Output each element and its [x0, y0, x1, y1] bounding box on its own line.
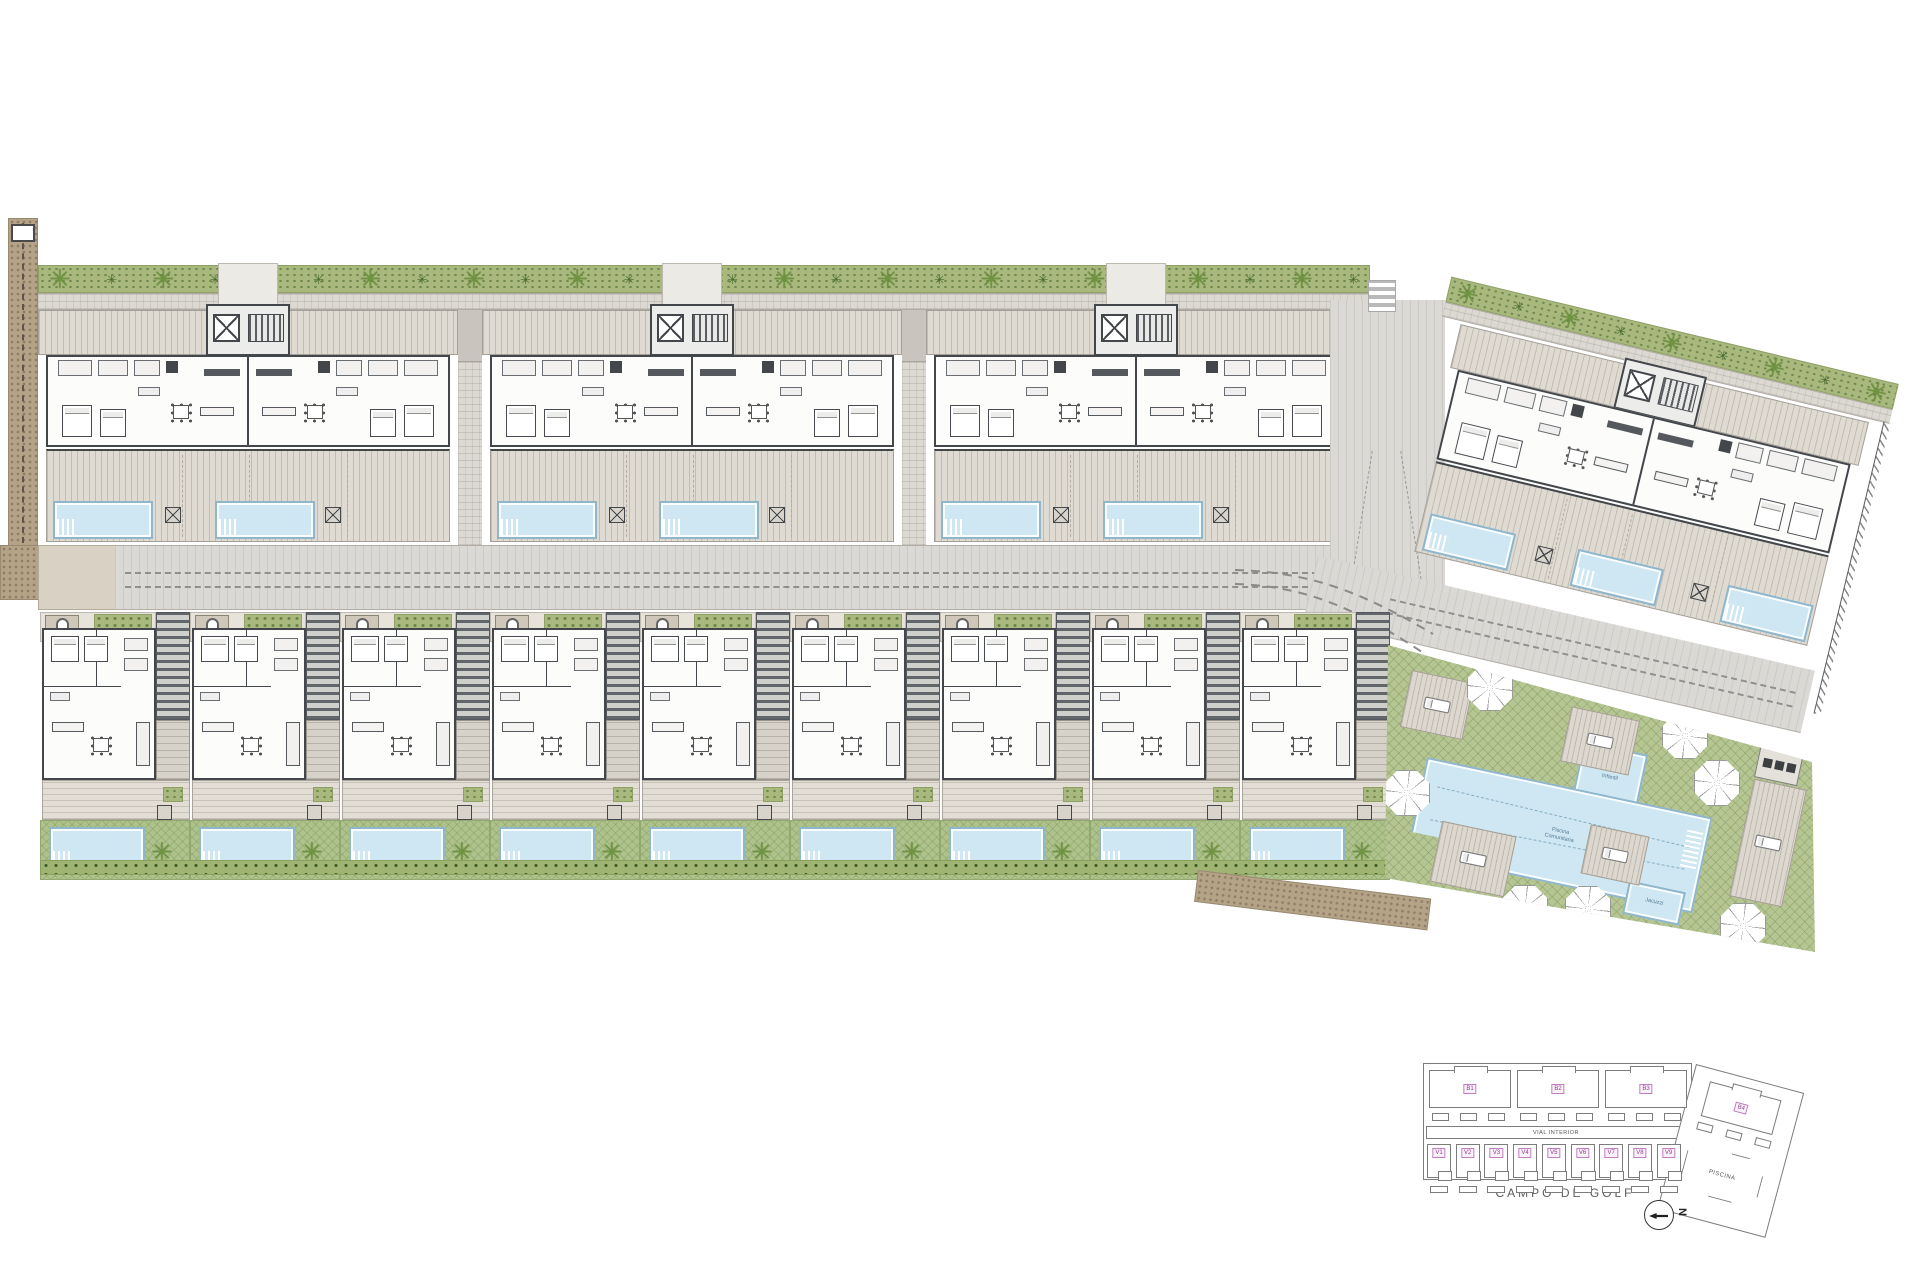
keyplan-villa-v7: V7: [1599, 1144, 1623, 1178]
terrace-divider: [791, 455, 792, 537]
planter: [163, 787, 183, 802]
sofa: [200, 407, 234, 416]
villa-tag: V4: [1518, 1148, 1531, 1158]
palm-icon: ✳: [566, 266, 588, 292]
apartment-unit: [248, 357, 448, 445]
parasol-icon: [1384, 770, 1430, 816]
wc-fixture: [762, 361, 774, 373]
path-centerline: [22, 223, 24, 543]
wardrobe: [50, 692, 70, 701]
kitchen-counter: [1607, 420, 1644, 435]
private-pool: [1422, 513, 1516, 570]
planter: [1213, 787, 1233, 802]
private-pool: [1570, 549, 1664, 606]
kitchen-counter: [436, 722, 450, 766]
elevator-icon: [213, 314, 240, 342]
wardrobe: [500, 692, 520, 701]
villa-side-deck: [906, 720, 940, 780]
wardrobe: [1224, 387, 1246, 396]
keyplan-villa-v4: V4: [1513, 1144, 1537, 1178]
dining-table: [1691, 474, 1721, 501]
dining-table: [168, 401, 194, 423]
sofa: [202, 722, 234, 732]
block-building: [490, 355, 894, 447]
wardrobe: [650, 692, 670, 701]
bush-icon: ✳: [727, 273, 738, 286]
stairs-icon: [1136, 314, 1172, 342]
kitchen-counter: [648, 369, 684, 376]
bathroom: [134, 360, 160, 376]
private-pool: [53, 501, 153, 539]
villa-side-deck: [1056, 720, 1090, 780]
bed: [84, 636, 108, 662]
bush-icon: ✳: [1818, 372, 1832, 387]
wc-fixture: [610, 361, 622, 373]
dining-table: [388, 734, 414, 756]
bed: [534, 636, 558, 662]
villa-stairs: [306, 612, 340, 720]
kitchen-counter: [136, 722, 150, 766]
gap-paving: [458, 310, 482, 362]
planter-box: [609, 507, 625, 523]
apartment-block-b3: [926, 310, 1346, 545]
keyplan-villa-pool: [1631, 1186, 1649, 1193]
keyplan-garage: [1520, 1113, 1537, 1121]
keyplan-villa-pool: [1545, 1186, 1563, 1193]
planter-box: [1057, 805, 1072, 820]
elevator-icon: [1623, 369, 1656, 403]
bed: [1754, 498, 1786, 531]
wardrobe: [1250, 692, 1270, 701]
villa-stairs: [1206, 612, 1240, 720]
planter-box: [769, 507, 785, 523]
apartment-unit: [692, 357, 892, 445]
sofa: [1088, 407, 1122, 416]
sun-lounger: [1423, 696, 1451, 713]
lounger-cushion: [1462, 853, 1469, 862]
planter: [463, 787, 483, 802]
villa-stairs: [1056, 612, 1090, 720]
kitchen-counter: [1657, 432, 1694, 447]
key-plan: VIAL INTERIOR B4 PISCINA CAMPO DE GOLF N…: [1420, 1060, 1820, 1270]
bed: [984, 636, 1008, 662]
block-b4-tag: B4: [1733, 1102, 1748, 1115]
keyplan-villa-v5: V5: [1542, 1144, 1566, 1178]
bathroom: [874, 638, 898, 651]
pool-steps: [1680, 827, 1704, 869]
terrace-divider: [347, 455, 348, 537]
sofa: [644, 407, 678, 416]
planter-box: [325, 507, 341, 523]
apartment-unit: [1136, 357, 1336, 445]
wardrobe: [1100, 692, 1120, 701]
keyplan-garage: [1432, 1113, 1449, 1121]
wc-fixture: [1718, 439, 1732, 453]
bed: [1134, 636, 1158, 662]
sun-lounger: [1601, 846, 1629, 863]
apartment-unit: [48, 357, 248, 445]
private-pool: [497, 501, 597, 539]
sofa: [706, 407, 740, 416]
bush-icon: ✳: [831, 273, 842, 286]
bed: [351, 636, 379, 662]
bed: [501, 636, 529, 662]
dining-table: [88, 734, 114, 756]
bed: [1284, 636, 1308, 662]
kitchen-counter: [204, 369, 240, 376]
sofa: [1150, 407, 1184, 416]
interior-wall: [1244, 686, 1321, 687]
interior-wall: [1094, 686, 1171, 687]
bed: [62, 405, 92, 437]
site-plan-canvas: ✳✳✳✳✳✳✳✳✳✳✳✳✳✳✳✳✳✳✳✳✳✳✳✳✳✳: [0, 0, 1920, 1280]
interior-wall: [494, 686, 571, 687]
terrace-divider: [1548, 499, 1568, 579]
pool-steps: [1574, 567, 1597, 587]
bathroom: [502, 360, 536, 376]
sun-lounger: [1586, 732, 1614, 749]
bathroom: [542, 360, 572, 376]
kitchen-counter: [286, 722, 300, 766]
bush-icon: ✳: [1716, 348, 1730, 363]
keyplan-villa-v6: V6: [1571, 1144, 1595, 1178]
keyplan-villa-v3: V3: [1484, 1144, 1508, 1178]
bed: [988, 409, 1014, 437]
keyplan-block-b3: B3: [1605, 1070, 1687, 1108]
lounger-cushion: [1757, 837, 1764, 846]
bed: [951, 636, 979, 662]
bed: [404, 405, 434, 437]
keyplan-garage: [1725, 1129, 1743, 1141]
villa-side-deck: [756, 720, 790, 780]
planter-box: [1690, 583, 1709, 602]
stairs-icon: [1657, 377, 1699, 413]
bathroom: [1735, 442, 1764, 464]
palm-icon: ✳: [877, 266, 899, 292]
pool-steps: [945, 519, 965, 535]
bush-icon: ✳: [624, 273, 635, 286]
block-building: [46, 355, 450, 447]
bed: [1292, 405, 1322, 437]
keyplan-garage: [1460, 1113, 1477, 1121]
wc-fixture: [166, 361, 178, 373]
villa-tag: V2: [1461, 1148, 1474, 1158]
dining-table: [1561, 443, 1591, 470]
palm-icon: ✳: [1291, 266, 1313, 292]
bathroom: [368, 360, 398, 376]
apartment-block-b1: [38, 310, 458, 545]
road-dash-line: [125, 586, 1318, 588]
planter-box: [1207, 805, 1222, 820]
lounger-cushion: [1426, 699, 1433, 708]
block-tag: B2: [1551, 1084, 1564, 1094]
gate-box: [11, 224, 35, 242]
bathroom: [404, 360, 438, 376]
bathroom: [1256, 360, 1286, 376]
villa-floorplan: [642, 628, 756, 780]
block-gap: [902, 310, 926, 545]
bathroom: [58, 360, 92, 376]
sofa: [502, 722, 534, 732]
villa-stairs: [606, 612, 640, 720]
wardrobe: [780, 387, 802, 396]
parasol-icon: [1565, 886, 1611, 932]
dining-table: [1288, 734, 1314, 756]
villa-floorplan: [42, 628, 156, 780]
sofa: [802, 722, 834, 732]
wc-fixture: [1570, 404, 1584, 418]
planter: [1063, 787, 1083, 802]
apartment-unit: [492, 357, 692, 445]
north-compass: [1644, 1200, 1674, 1230]
planter-box: [607, 805, 622, 820]
planter-box: [307, 805, 322, 820]
bathroom: [1504, 387, 1537, 410]
villa-row: ✳ ✳: [40, 612, 1390, 880]
bathroom: [124, 658, 148, 671]
bathroom: [1539, 395, 1568, 417]
bathroom: [424, 658, 448, 671]
terrace-divider: [182, 455, 183, 537]
private-pool: [659, 501, 759, 539]
road-dash-line: [125, 572, 1318, 574]
planter-box: [1213, 507, 1229, 523]
sofa: [52, 722, 84, 732]
palm-icon: ✳: [773, 266, 795, 292]
pool-steps: [219, 519, 239, 535]
villa-tag: V5: [1547, 1148, 1560, 1158]
villa-side-deck: [1206, 720, 1240, 780]
interior-wall: [794, 686, 871, 687]
villa-stairs: [456, 612, 490, 720]
sofa: [652, 722, 684, 732]
keyplan-garage: [1488, 1113, 1505, 1121]
interior-wall: [44, 686, 121, 687]
block-tag: B1: [1463, 1084, 1476, 1094]
bed: [234, 636, 258, 662]
sun-lounger: [1754, 834, 1782, 851]
sofa: [952, 722, 984, 732]
bush-icon: ✳: [1245, 273, 1256, 286]
block-building: [934, 355, 1338, 447]
bed: [201, 636, 229, 662]
bed: [384, 636, 408, 662]
sofa: [1102, 722, 1134, 732]
bed: [1454, 422, 1491, 460]
dining-table: [1138, 734, 1164, 756]
parasol-icon: [1720, 903, 1766, 949]
keyplan-villa-v2: V2: [1456, 1144, 1480, 1178]
keyplan-villa-v1: V1: [1427, 1144, 1451, 1178]
keyplan-garage: [1754, 1137, 1772, 1149]
bathroom: [724, 658, 748, 671]
dining-table: [838, 734, 864, 756]
block-gap: [458, 310, 482, 545]
keyplan-piscina-building: PISCINA: [1677, 1142, 1767, 1209]
interior-wall: [344, 686, 421, 687]
bed: [684, 636, 708, 662]
villa-v6: ✳: [790, 612, 940, 880]
bathroom: [124, 638, 148, 651]
block-pool-terrace: [46, 449, 450, 542]
bed: [834, 636, 858, 662]
bathroom: [848, 360, 882, 376]
sun-lounger: [1459, 850, 1487, 867]
keyplan-villa-pool: [1459, 1186, 1477, 1193]
block-stair-core: [206, 304, 290, 356]
bathroom: [574, 658, 598, 671]
interior-wall: [944, 686, 1021, 687]
elevator-icon: [657, 314, 684, 342]
block-stair-core: [1094, 304, 1178, 356]
villa-v2: ✳: [190, 612, 340, 880]
bush-icon: ✳: [1512, 299, 1526, 314]
apartment-block-b2: [482, 310, 902, 545]
wardrobe: [950, 692, 970, 701]
bathroom: [1224, 360, 1250, 376]
road-entry: [38, 545, 118, 610]
bed: [1101, 636, 1129, 662]
wc-fixture: [318, 361, 330, 373]
stairs-icon: [692, 314, 728, 342]
bathroom: [812, 360, 842, 376]
bush-icon: ✳: [417, 273, 428, 286]
private-pool: [1719, 585, 1813, 642]
bathroom: [1801, 458, 1838, 481]
sofa: [352, 722, 384, 732]
wardrobe: [350, 692, 370, 701]
bed: [370, 409, 396, 437]
crosswalk: [1368, 280, 1396, 312]
bathroom: [1174, 658, 1198, 671]
block-pool-terrace: [490, 449, 894, 542]
north-letter: N: [1676, 1208, 1688, 1216]
dining-table: [746, 401, 772, 423]
interior-wall: [644, 686, 721, 687]
sofa: [1252, 722, 1284, 732]
north-arrow-icon: [1649, 1213, 1668, 1219]
palm-icon: ✳: [359, 266, 381, 292]
wardrobe: [1538, 422, 1561, 436]
villa-tag: V6: [1576, 1148, 1589, 1158]
kitchen-counter: [1092, 369, 1128, 376]
keyplan-garage: [1608, 1113, 1625, 1121]
dining-table: [302, 401, 328, 423]
villa-side-deck: [1356, 720, 1390, 780]
lounger-cushion: [1604, 849, 1611, 858]
bed: [651, 636, 679, 662]
pool-steps: [1724, 603, 1747, 623]
villa-v7: ✳: [940, 612, 1090, 880]
bathroom: [874, 658, 898, 671]
private-pool: [941, 501, 1041, 539]
bush-icon: ✳: [1614, 323, 1628, 338]
dining-table: [1190, 401, 1216, 423]
wardrobe: [1730, 469, 1753, 483]
wc-fixture: [1206, 361, 1218, 373]
keyplan-vial: VIAL INTERIOR: [1426, 1126, 1686, 1139]
wardrobe: [1026, 387, 1048, 396]
bathroom: [986, 360, 1016, 376]
palm-icon: ✳: [49, 266, 71, 292]
block-pool-terrace: [934, 449, 1338, 542]
villa-tag: V3: [1490, 1148, 1503, 1158]
bathroom: [424, 638, 448, 651]
villa-floorplan: [492, 628, 606, 780]
parasol-icon: [1502, 885, 1548, 931]
bathroom: [578, 360, 604, 376]
apartment-unit: [936, 357, 1136, 445]
wardrobe: [582, 387, 604, 396]
villa-side-deck: [306, 720, 340, 780]
bed: [1787, 502, 1824, 540]
bed: [1491, 435, 1523, 468]
bed: [100, 409, 126, 437]
planter-box: [157, 805, 172, 820]
keyplan-garage: [1576, 1113, 1593, 1121]
stairs-icon: [248, 314, 284, 342]
keyplan-garage: [1636, 1113, 1653, 1121]
bed: [1251, 636, 1279, 662]
bathroom: [1022, 360, 1048, 376]
south-hedge: [40, 860, 1390, 875]
planter: [613, 787, 633, 802]
kitchen-counter: [1036, 722, 1050, 766]
bed: [848, 405, 878, 437]
dining-table: [612, 401, 638, 423]
bathroom: [1465, 377, 1502, 400]
planter-box: [757, 805, 772, 820]
pool-steps: [501, 519, 521, 535]
bed: [51, 636, 79, 662]
villa-stairs: [906, 612, 940, 720]
bathroom: [1766, 450, 1799, 473]
planter: [1363, 787, 1383, 802]
kitchen-counter: [1144, 369, 1180, 376]
bathroom: [336, 360, 362, 376]
bush-icon: ✳: [934, 273, 945, 286]
pool-steps: [663, 519, 683, 535]
keyplan-garage: [1696, 1122, 1714, 1134]
villa-v1: ✳: [40, 612, 190, 880]
bed: [814, 409, 840, 437]
dining-table: [688, 734, 714, 756]
dining-table: [1056, 401, 1082, 423]
bush-icon: ✳: [1038, 273, 1049, 286]
villa-floorplan: [1092, 628, 1206, 780]
planter-box: [165, 507, 181, 523]
keyplan-villa-pool: [1487, 1186, 1505, 1193]
kitchen-counter: [736, 722, 750, 766]
vial-interior-label: VIAL INTERIOR: [1533, 1130, 1579, 1136]
villa-v4: ✳: [490, 612, 640, 880]
villa-side-deck: [156, 720, 190, 780]
piscina-label: PISCINA: [1708, 1169, 1736, 1182]
bathroom: [1292, 360, 1326, 376]
wc-fixture: [1054, 361, 1066, 373]
parasol-icon: [1694, 760, 1740, 806]
sofa: [1654, 471, 1689, 488]
planter: [313, 787, 333, 802]
bush-icon: ✳: [106, 273, 117, 286]
villa-tag: V7: [1605, 1148, 1618, 1158]
private-pool: [1103, 501, 1203, 539]
bush-icon: ✳: [1348, 273, 1359, 286]
interior-road: [115, 545, 1330, 610]
palm-icon: ✳: [463, 266, 485, 292]
block-tag: B3: [1639, 1084, 1652, 1094]
bathroom: [1024, 658, 1048, 671]
